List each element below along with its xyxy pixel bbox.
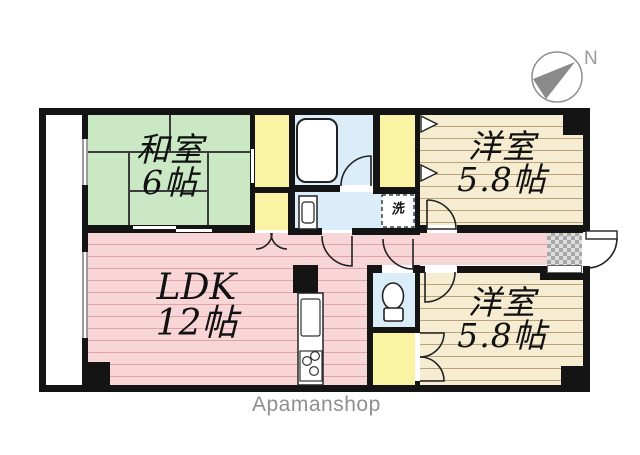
stove-burner: [311, 352, 320, 361]
stove-burner: [303, 357, 312, 366]
ldk-size: 12帖: [128, 306, 265, 342]
door-entry-leaf: [586, 231, 617, 239]
washitsu-label: 和室 6帖: [108, 133, 232, 199]
ldk-label: LDK 12帖: [128, 270, 265, 342]
door-washroom: [322, 236, 352, 266]
youshitsu-south-size: 5.8帖: [432, 319, 572, 352]
compass-needle: [533, 62, 575, 99]
door-closet-south: [420, 357, 444, 381]
washitsu-size: 6帖: [108, 166, 232, 199]
kitchen-sink: [301, 299, 320, 336]
youshitsu-north-name: 洋室: [432, 130, 572, 163]
youshitsu-north-label: 洋室 5.8帖: [432, 130, 572, 196]
door-bath: [341, 156, 371, 186]
youshitsu-south-label: 洋室 5.8帖: [432, 286, 572, 352]
floor-plan: 和室 6帖 LDK 12帖 洋室 5.8帖 洋室 5.8帖 洗 N Apaman…: [0, 0, 640, 455]
door-youshitsu-north: [427, 200, 456, 229]
stove-burner: [310, 367, 319, 376]
youshitsu-north-size: 5.8帖: [432, 163, 572, 196]
door-entry-arc: [587, 238, 617, 268]
washing-machine-label: 洗: [390, 202, 405, 217]
washbasin-bowl: [302, 202, 314, 223]
watermark: Apamanshop: [252, 394, 381, 415]
ldk-name: LDK: [128, 270, 265, 306]
toilet-bowl: [383, 283, 404, 309]
door-toilet: [383, 239, 413, 269]
washitsu-name: 和室: [108, 133, 232, 166]
youshitsu-south-name: 洋室: [432, 286, 572, 319]
compass-north-label: N: [584, 49, 598, 68]
toilet-tank: [384, 308, 403, 321]
bathtub: [297, 119, 337, 182]
door-closet-ldk: [271, 233, 287, 249]
door-closet-ldk: [256, 233, 272, 249]
